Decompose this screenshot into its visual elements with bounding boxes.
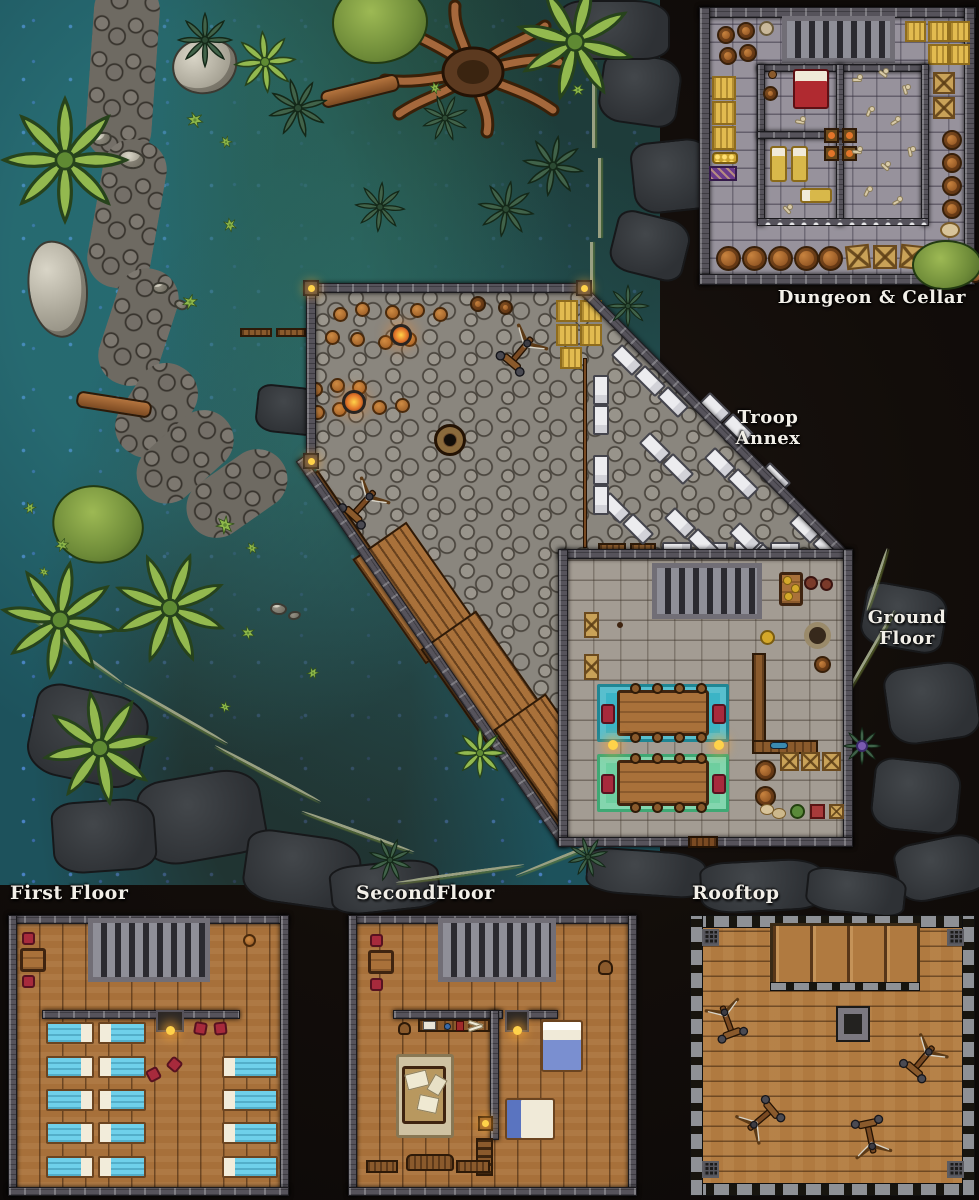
torch-icon bbox=[608, 740, 618, 750]
long-table bbox=[617, 690, 709, 736]
cell-bars bbox=[757, 218, 929, 226]
bed-blue bbox=[46, 1156, 94, 1178]
barrel bbox=[742, 246, 767, 271]
hay-bale bbox=[712, 76, 736, 100]
barrel bbox=[737, 22, 755, 40]
dark-plant-icon bbox=[170, 5, 240, 75]
bread-sack bbox=[772, 808, 786, 819]
hay-bale bbox=[580, 324, 602, 346]
well-hole bbox=[444, 434, 456, 446]
red-chair bbox=[370, 934, 383, 947]
round-stool bbox=[333, 307, 348, 322]
crate bbox=[873, 245, 897, 269]
long-table bbox=[617, 760, 709, 806]
purple-cloth bbox=[709, 166, 737, 181]
stair-grate bbox=[782, 16, 895, 63]
fruit-bowl bbox=[784, 592, 793, 601]
label-ground-line1: Ground bbox=[855, 608, 959, 629]
barrel bbox=[942, 176, 962, 196]
table-chair bbox=[674, 732, 685, 743]
bar-counter-vertical bbox=[752, 653, 766, 747]
bowl bbox=[759, 21, 774, 36]
plant-pot bbox=[804, 576, 818, 590]
dungeon-wall-left bbox=[699, 7, 710, 285]
crate bbox=[845, 244, 871, 270]
crate bbox=[801, 752, 820, 771]
crate bbox=[933, 72, 955, 94]
round-stool bbox=[433, 307, 448, 322]
table-chair bbox=[652, 753, 663, 764]
troop-cot bbox=[593, 375, 609, 405]
double-bed bbox=[541, 1020, 583, 1072]
brazier-fire bbox=[846, 132, 853, 139]
barrel bbox=[942, 153, 962, 173]
roof-edge-stones bbox=[770, 982, 920, 991]
tree-canopy bbox=[912, 240, 979, 290]
courtyard-wall-top bbox=[306, 283, 589, 293]
purple-flower bbox=[856, 740, 868, 752]
barrel bbox=[719, 47, 737, 65]
fire-glow bbox=[513, 1026, 522, 1035]
red-bed bbox=[793, 69, 829, 109]
candle bbox=[482, 1120, 489, 1127]
hay-bale bbox=[949, 44, 970, 65]
label-troop-line1: Troop bbox=[718, 408, 818, 429]
barrel bbox=[470, 296, 486, 312]
barrel bbox=[739, 44, 757, 62]
sack bbox=[940, 222, 960, 238]
building-wall-right bbox=[843, 549, 853, 847]
bed-blue bbox=[46, 1056, 94, 1078]
palm-tree-icon bbox=[454, 727, 506, 779]
table-chair bbox=[630, 732, 641, 743]
bed-blue bbox=[98, 1156, 146, 1178]
barrel bbox=[814, 656, 831, 673]
table-chair bbox=[696, 683, 707, 694]
corner-hatch bbox=[947, 1161, 964, 1178]
bed-blue bbox=[222, 1089, 278, 1111]
bush-icon bbox=[210, 205, 249, 244]
inner-wall bbox=[393, 1010, 503, 1019]
wall-bottom bbox=[8, 1187, 289, 1196]
torch-icon bbox=[581, 285, 588, 292]
table bbox=[20, 948, 46, 972]
label-troop-annex: Troop Annex bbox=[718, 408, 818, 449]
wall-right bbox=[628, 915, 637, 1196]
skull bbox=[869, 106, 875, 112]
inner-wall bbox=[528, 1010, 558, 1019]
skull bbox=[883, 68, 889, 74]
chair bbox=[598, 960, 613, 975]
round-stool bbox=[355, 302, 370, 317]
red-chair bbox=[22, 975, 35, 988]
hay-bale bbox=[556, 300, 578, 322]
round-stool bbox=[410, 303, 425, 318]
rock-slab bbox=[804, 865, 908, 919]
chair bbox=[398, 1022, 411, 1035]
brazier-fire bbox=[828, 150, 835, 157]
bed-blue bbox=[98, 1122, 146, 1144]
round-stool bbox=[385, 305, 400, 320]
hay-bale bbox=[905, 21, 926, 42]
x bbox=[617, 622, 623, 628]
bench bbox=[276, 328, 306, 337]
brazier-fire bbox=[828, 132, 835, 139]
label-ground-line2: Floor bbox=[855, 629, 959, 650]
table-chair bbox=[652, 802, 663, 813]
greens-plate bbox=[790, 804, 805, 819]
annex-fence bbox=[583, 358, 587, 548]
bedroll bbox=[800, 188, 832, 203]
firepit bbox=[342, 390, 366, 414]
label-troop-line2: Annex bbox=[718, 429, 818, 450]
bed-blue bbox=[46, 1122, 94, 1144]
skull bbox=[897, 196, 903, 202]
bed-blue bbox=[222, 1156, 278, 1178]
stool bbox=[243, 934, 256, 947]
courtyard-wall-left bbox=[306, 283, 316, 465]
stair-grate bbox=[652, 563, 762, 619]
red-armchair bbox=[712, 704, 726, 724]
wall-left bbox=[348, 915, 357, 1196]
hay-bale bbox=[928, 44, 949, 65]
bed-blue bbox=[98, 1022, 146, 1044]
barrel bbox=[942, 130, 962, 150]
skull bbox=[800, 116, 806, 122]
ink-pot bbox=[444, 1023, 451, 1030]
bed-blue bbox=[222, 1122, 278, 1144]
bench bbox=[240, 328, 272, 337]
shore-rim bbox=[598, 158, 601, 238]
cell-wall bbox=[921, 64, 929, 226]
troop-cot bbox=[593, 485, 609, 515]
fruit-bowl bbox=[791, 584, 800, 593]
skull bbox=[895, 116, 901, 122]
rock-slab bbox=[881, 658, 979, 748]
barrel bbox=[755, 760, 776, 781]
couch bbox=[406, 1154, 454, 1171]
desk bbox=[368, 950, 394, 974]
sloped-roof bbox=[770, 923, 920, 985]
bed-blue bbox=[98, 1089, 146, 1111]
table-chair bbox=[696, 732, 707, 743]
jug bbox=[768, 70, 777, 79]
hay-bale bbox=[949, 21, 970, 42]
crate bbox=[933, 97, 955, 119]
label-rooftop: Rooftop bbox=[692, 883, 780, 905]
wall-left bbox=[8, 915, 17, 1196]
corner-hatch bbox=[702, 1161, 719, 1178]
stair-grate bbox=[438, 918, 556, 982]
round-stool bbox=[395, 398, 410, 413]
skull bbox=[857, 74, 863, 80]
skull bbox=[787, 204, 793, 210]
skull bbox=[910, 146, 916, 152]
corner-hatch bbox=[947, 929, 964, 946]
label-ground-floor: Ground Floor bbox=[855, 608, 959, 649]
table-chair bbox=[652, 683, 663, 694]
skull bbox=[857, 146, 863, 152]
red-armchair bbox=[601, 774, 615, 794]
barrel bbox=[716, 246, 741, 271]
table-chair bbox=[696, 802, 707, 813]
red-chair bbox=[22, 932, 35, 945]
wall-cage bbox=[584, 612, 599, 638]
skull bbox=[905, 84, 911, 90]
table-chair bbox=[674, 753, 685, 764]
red-crate bbox=[810, 804, 825, 819]
label-second-floor: SecondFloor bbox=[356, 883, 495, 905]
plant-pot bbox=[820, 578, 833, 591]
red-chair bbox=[213, 1021, 227, 1035]
door bbox=[688, 836, 718, 848]
corner-hatch bbox=[702, 929, 719, 946]
troop-cot bbox=[593, 405, 609, 435]
crate bbox=[829, 804, 844, 819]
table-chair bbox=[630, 683, 641, 694]
hay-bale bbox=[928, 21, 949, 42]
red-chair bbox=[370, 978, 383, 991]
barrel bbox=[794, 246, 819, 271]
honey-wheel bbox=[760, 630, 775, 645]
cell-wall bbox=[836, 64, 844, 226]
table-chair bbox=[696, 753, 707, 764]
torch-icon bbox=[308, 458, 315, 465]
loom bbox=[423, 1021, 436, 1030]
bed-blue bbox=[46, 1022, 94, 1044]
inner-wall bbox=[42, 1010, 240, 1019]
bedroll bbox=[791, 146, 808, 182]
fruit-bowl bbox=[783, 576, 792, 585]
battle-map: Dungeon & Cellar Troop Annex Ground Floo… bbox=[0, 0, 979, 1200]
battlement-bottom bbox=[690, 1183, 975, 1196]
red-armchair bbox=[601, 704, 615, 724]
battlement-left bbox=[690, 915, 703, 1196]
red-chair bbox=[193, 1021, 208, 1036]
building-wall-top bbox=[558, 549, 853, 559]
torch-icon bbox=[714, 740, 724, 750]
bush-icon bbox=[561, 73, 595, 107]
troop-cot bbox=[593, 455, 609, 485]
chimney bbox=[838, 1008, 868, 1040]
bed-blue bbox=[222, 1056, 278, 1078]
crate bbox=[780, 752, 799, 771]
barrel bbox=[717, 26, 735, 44]
blue-fish bbox=[770, 742, 788, 749]
hay-bale bbox=[712, 126, 736, 150]
round-stool bbox=[325, 330, 340, 345]
skull bbox=[885, 161, 891, 167]
torch-icon bbox=[308, 285, 315, 292]
round-stool bbox=[372, 400, 387, 415]
round-stool bbox=[330, 378, 345, 393]
red-book bbox=[456, 1021, 464, 1031]
label-first-floor: First Floor bbox=[10, 883, 128, 905]
barrel bbox=[818, 246, 843, 271]
palm-tree-icon bbox=[0, 95, 130, 225]
fire-glow bbox=[166, 1026, 175, 1035]
table-chair bbox=[630, 753, 641, 764]
table-chair bbox=[630, 802, 641, 813]
hay-bale bbox=[712, 101, 736, 125]
barrel bbox=[942, 199, 962, 219]
table-chair bbox=[652, 732, 663, 743]
bed-blue bbox=[46, 1089, 94, 1111]
round-basin bbox=[804, 622, 831, 649]
table-chair bbox=[674, 802, 685, 813]
wall-cage bbox=[584, 654, 599, 680]
stair-grate bbox=[88, 918, 210, 982]
gold-pile bbox=[712, 152, 738, 164]
bench bbox=[456, 1160, 490, 1173]
dark-plant-icon bbox=[601, 279, 655, 333]
label-dungeon-cellar: Dungeon & Cellar bbox=[770, 288, 966, 309]
bed-blue bbox=[98, 1056, 146, 1078]
wall-right bbox=[280, 915, 289, 1196]
wall-bottom bbox=[348, 1187, 637, 1196]
bedroll bbox=[770, 146, 787, 182]
double-bed bbox=[505, 1098, 555, 1140]
barrel bbox=[763, 86, 778, 101]
bench bbox=[366, 1160, 398, 1173]
round-stool bbox=[350, 332, 365, 347]
building-wall-left bbox=[558, 549, 568, 847]
table-chair bbox=[674, 683, 685, 694]
skull bbox=[867, 186, 873, 192]
ballista bbox=[831, 1097, 909, 1175]
campfire bbox=[390, 324, 412, 346]
barrel bbox=[768, 246, 793, 271]
red-armchair bbox=[712, 774, 726, 794]
